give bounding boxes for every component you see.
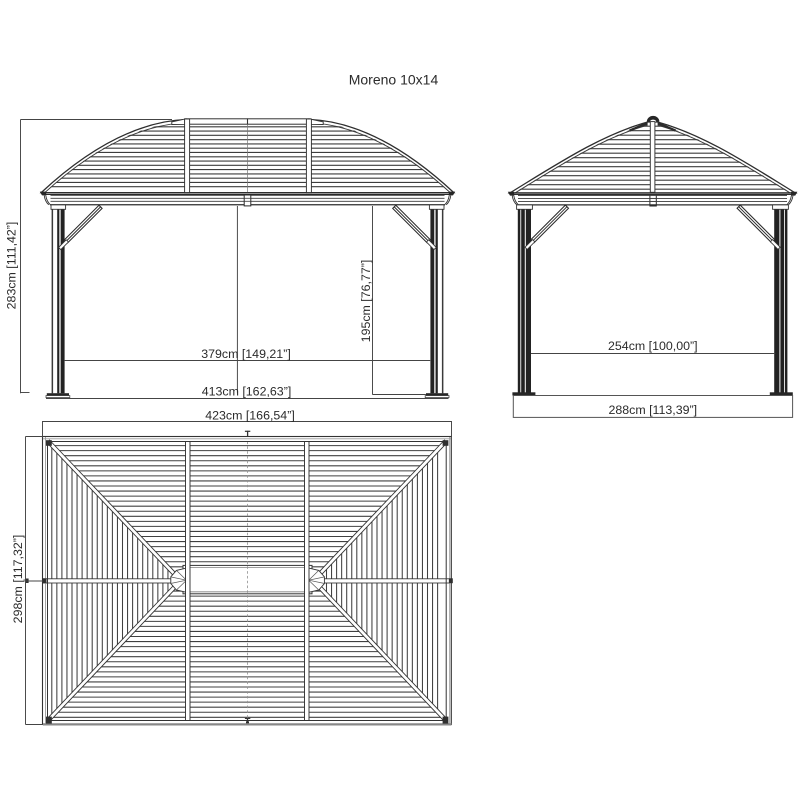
svg-text:254cm [100,00”]: 254cm [100,00”]: [608, 339, 698, 353]
svg-text:413cm [162,63”]: 413cm [162,63”]: [202, 384, 292, 398]
svg-text:283cm [111,42”]: 283cm [111,42”]: [4, 222, 18, 310]
svg-text:379cm [149,21”]: 379cm [149,21”]: [201, 347, 291, 361]
svg-text:423cm [166,54”]: 423cm [166,54”]: [205, 409, 295, 423]
svg-text:Moreno 10x14: Moreno 10x14: [349, 72, 439, 88]
svg-text:195cm [76,77”]: 195cm [76,77”]: [359, 260, 373, 343]
svg-text:288cm [113,39”]: 288cm [113,39”]: [608, 403, 697, 417]
svg-text:298cm [117,32”]: 298cm [117,32”]: [11, 535, 25, 624]
